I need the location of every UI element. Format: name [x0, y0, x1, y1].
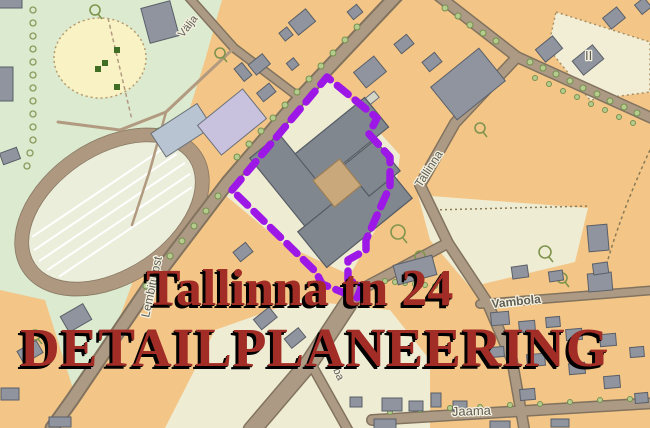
area-label-stand: II [585, 48, 592, 63]
base-map: Välja Tallinna Lembitu pst Vambola Jaama… [0, 0, 650, 428]
map-canvas: Välja Tallinna Lembitu pst Vambola Jaama… [0, 0, 650, 428]
street-label-jaama: Jaama [452, 403, 492, 419]
